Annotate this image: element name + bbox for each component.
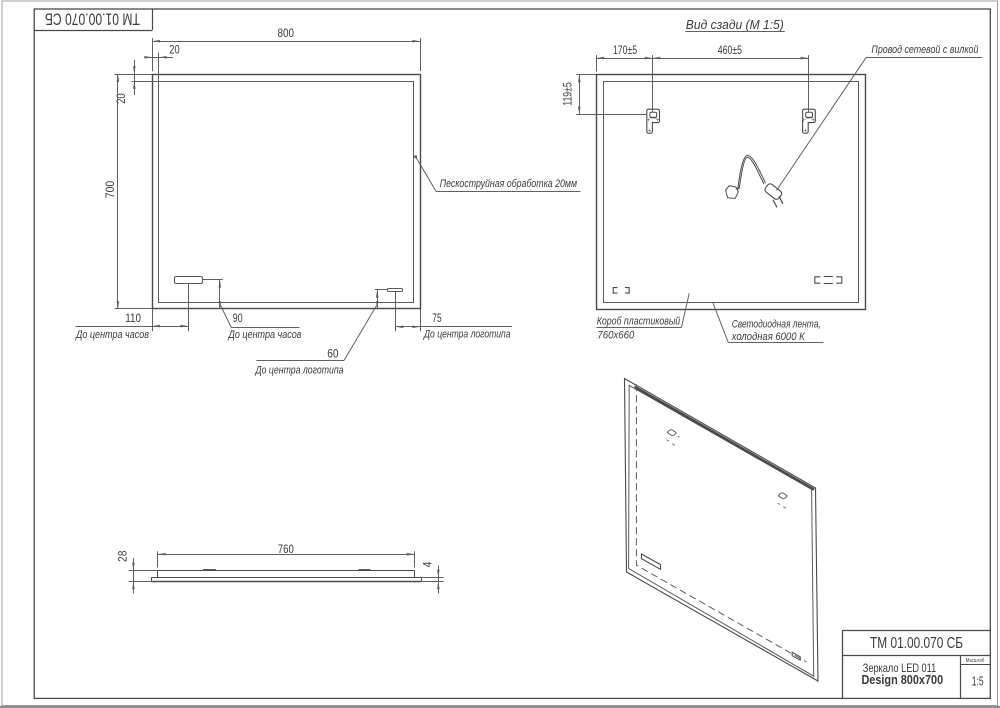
svg-text:1:5: 1:5 [972,675,984,689]
svg-text:До центра логотипа: До центра логотипа [255,365,344,377]
svg-text:Провод сетевой с вилкой: Провод сетевой с вилкой [871,44,978,56]
svg-text:20: 20 [169,44,180,57]
svg-text:Масштаб: Масштаб [966,658,985,664]
svg-text:760: 760 [278,543,294,556]
svg-text:Design 800x700: Design 800x700 [861,673,943,687]
svg-text:4: 4 [422,561,435,567]
svg-text:170±5: 170±5 [613,44,638,57]
svg-text:460±5: 460±5 [718,44,743,57]
svg-text:75: 75 [432,312,442,325]
svg-text:119±5: 119±5 [561,82,574,106]
svg-text:760х660: 760х660 [597,330,634,342]
svg-text:20: 20 [115,93,128,104]
svg-text:ТМ 01.00.070 СБ: ТМ 01.00.070 СБ [45,10,140,28]
svg-text:28: 28 [117,550,130,562]
svg-text:Вид сзади (М 1:5): Вид сзади (М 1:5) [686,17,784,32]
svg-text:Светодиодная лента,: Светодиодная лента, [732,319,821,331]
svg-text:До центра логотипа: До центра логотипа [423,329,510,341]
svg-text:60: 60 [327,347,339,360]
svg-text:Короб пластиковый: Короб пластиковый [597,316,681,328]
svg-text:90: 90 [233,312,243,325]
svg-text:110: 110 [125,312,141,325]
svg-text:800: 800 [278,27,295,40]
svg-text:Пескоструйная обработка 20мм: Пескоструйная обработка 20мм [440,178,578,190]
svg-text:700: 700 [104,180,117,198]
svg-text:До центра часов: До центра часов [228,329,302,341]
svg-text:холодная 6000 К: холодная 6000 К [731,331,806,343]
svg-text:ТМ 01.00.070 СБ: ТМ 01.00.070 СБ [870,635,963,652]
svg-text:До центра часов: До центра часов [75,329,149,341]
